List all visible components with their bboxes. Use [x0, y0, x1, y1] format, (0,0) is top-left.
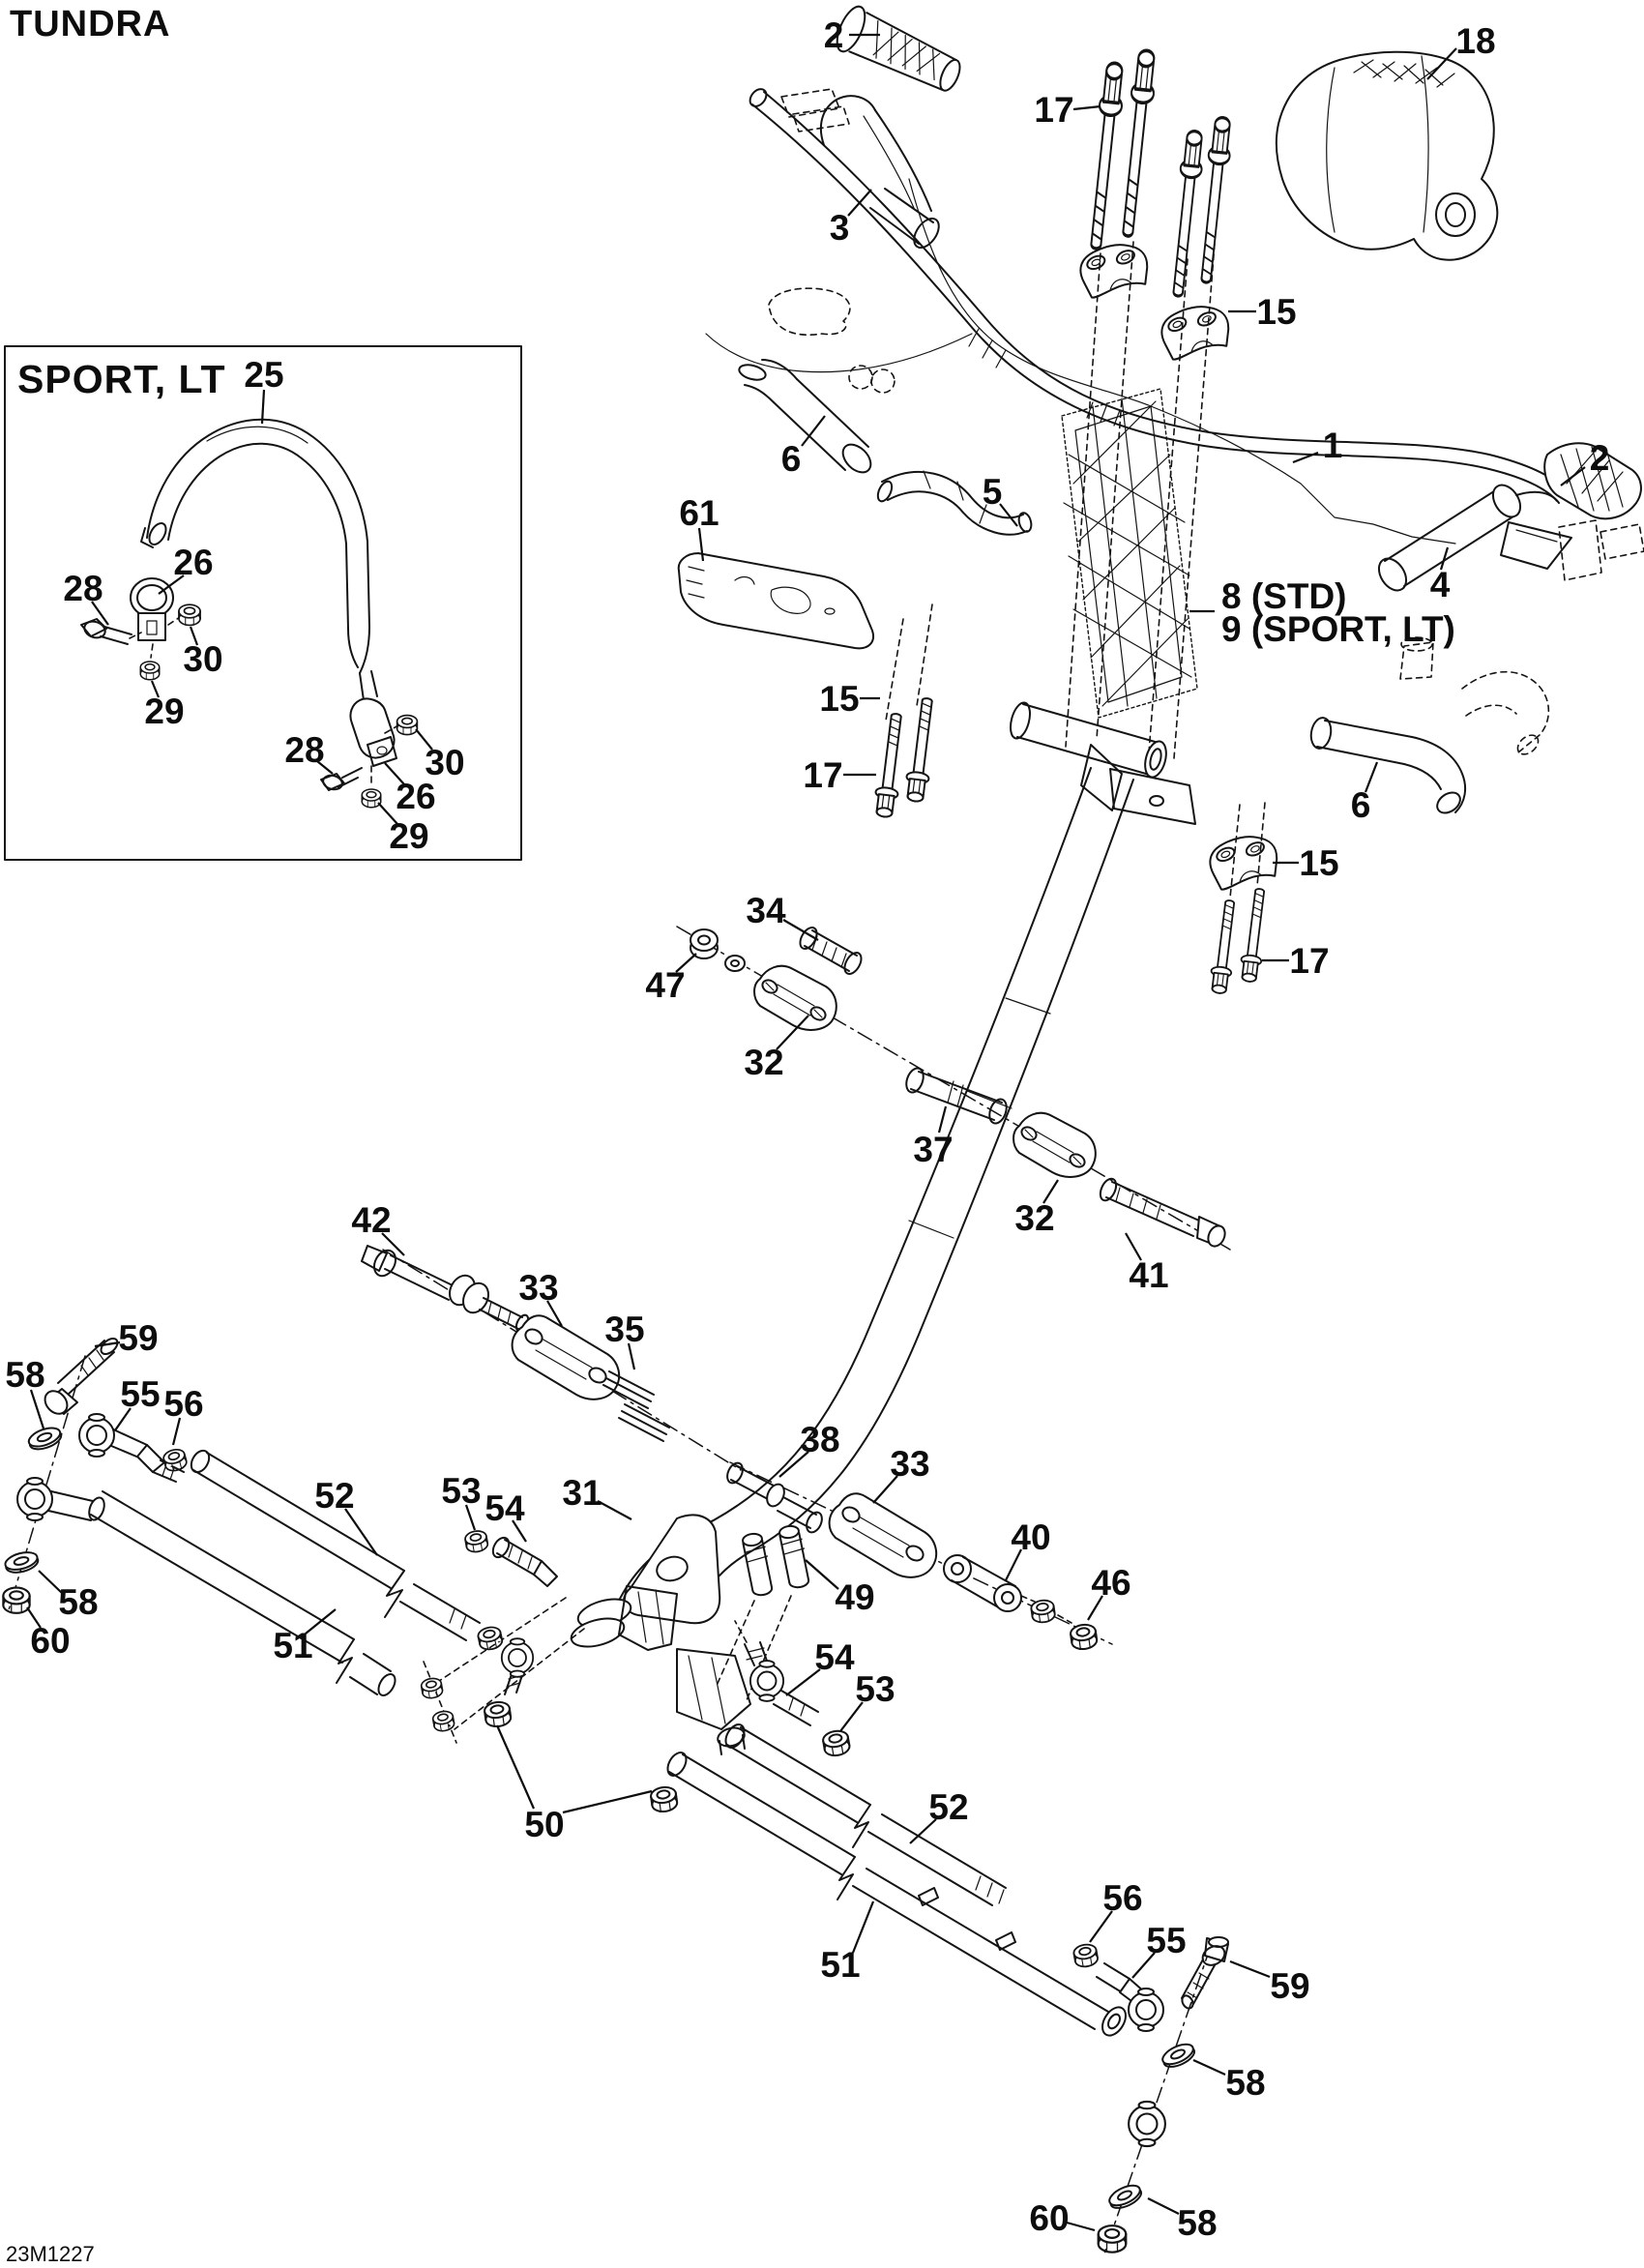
callout-61: 61 [679, 493, 719, 533]
inset-callout-layer: 252628302928302629 [63, 355, 464, 856]
callout-47: 47 [645, 965, 685, 1005]
callout-55: 55 [120, 1374, 160, 1414]
callout-59: 59 [1270, 1966, 1309, 2006]
callout-53: 53 [441, 1471, 481, 1511]
callout-38: 38 [800, 1420, 839, 1459]
right-tie-rods-drawing [664, 1621, 1228, 2253]
leader-line-50 [563, 1791, 652, 1812]
leader-line-60 [1067, 2223, 1095, 2230]
callout-52: 52 [928, 1787, 968, 1827]
upper-linkage-drawing [677, 925, 1230, 1250]
callout-18: 18 [1455, 21, 1495, 61]
callout-28: 28 [284, 730, 324, 770]
elbow-tube-left-drawing [738, 360, 876, 478]
callout-41: 41 [1129, 1255, 1168, 1295]
callout-42: 42 [351, 1200, 391, 1240]
leader-line-37 [939, 1106, 946, 1133]
callout-58: 58 [58, 1582, 98, 1622]
callout-26: 26 [396, 777, 435, 816]
callout-34: 34 [746, 891, 786, 930]
leader-line-58 [1148, 2198, 1179, 2214]
callout-40: 40 [1011, 1517, 1050, 1557]
callout-3: 3 [830, 208, 850, 248]
callout-15: 15 [819, 679, 859, 719]
left-tie-rods-drawing [8, 1336, 524, 1698]
inset-variant-label: SPORT, LT [17, 357, 226, 401]
callout-15: 15 [1256, 292, 1296, 332]
leader-line-31 [598, 1501, 631, 1519]
leader-line-17 [1073, 106, 1101, 109]
callout-30: 30 [183, 639, 222, 679]
hand-guard-drawing [1277, 52, 1497, 260]
callout-58: 58 [5, 1355, 44, 1395]
callout-32: 32 [1014, 1198, 1054, 1238]
callout-56: 56 [1102, 1878, 1142, 1918]
callout-56: 56 [163, 1384, 203, 1424]
left-grip-drawing [832, 3, 968, 99]
callout-33: 33 [890, 1444, 929, 1484]
rod-end-54a-drawing [489, 1535, 557, 1586]
callout-2: 2 [824, 15, 844, 55]
callout-17: 17 [1034, 90, 1073, 130]
leader-line-52 [345, 1509, 377, 1555]
callout-15: 15 [1299, 843, 1338, 883]
callout-59: 59 [118, 1318, 158, 1358]
callout-49: 49 [835, 1577, 874, 1617]
callout-54: 54 [814, 1637, 855, 1677]
callout-6: 6 [781, 439, 802, 479]
callout-50: 50 [524, 1805, 564, 1844]
callout-2: 2 [1590, 438, 1610, 478]
leader-line-58 [1193, 2060, 1225, 2075]
callout-35: 35 [604, 1310, 644, 1349]
callout-1: 1 [1323, 426, 1343, 465]
leader-line-59 [1230, 1961, 1270, 1977]
steering-diagram: TUNDRA SPORT, LT 23M1227 217183151265614… [0, 0, 1644, 2268]
callout-26: 26 [173, 543, 213, 582]
callout-32: 32 [744, 1043, 783, 1082]
callout-55: 55 [1146, 1921, 1186, 1960]
callout-4: 4 [1430, 565, 1451, 604]
steering-column-drawing [424, 700, 1195, 1754]
page-title: TUNDRA [10, 4, 170, 44]
callout-37: 37 [913, 1130, 953, 1169]
callout-28: 28 [63, 569, 103, 608]
leader-line-50 [497, 1725, 534, 1809]
callout-17: 17 [1289, 941, 1329, 981]
callout-60: 60 [30, 1621, 70, 1661]
leader-line-25 [262, 390, 264, 424]
callout-29: 29 [144, 692, 184, 731]
callout-6: 6 [1351, 785, 1371, 825]
callout-58: 58 [1225, 2063, 1265, 2103]
callout-5: 5 [983, 472, 1003, 512]
callout-33: 33 [518, 1268, 558, 1308]
leader-line-58 [31, 1390, 44, 1429]
handlebar-pad-drawing [1062, 389, 1197, 718]
callout-58: 58 [1177, 2203, 1217, 2243]
bracket-61-drawing [679, 553, 873, 648]
document-code: 23M1227 [6, 2242, 95, 2266]
callout-25: 25 [244, 355, 283, 395]
diagram-artwork [3, 3, 1644, 2253]
parts-catalog-page: TUNDRA SPORT, LT 23M1227 217183151265614… [0, 0, 1644, 2268]
callout-31: 31 [562, 1473, 602, 1513]
callout-46: 46 [1091, 1563, 1130, 1603]
clamp-26b-drawing [321, 698, 398, 791]
callout-54: 54 [484, 1488, 525, 1528]
callout-51: 51 [820, 1945, 860, 1985]
hose-drawing [875, 471, 1033, 535]
callout-60: 60 [1029, 2198, 1069, 2238]
leader-line-5 [1000, 504, 1017, 526]
callout-53: 53 [855, 1669, 895, 1709]
callout-layer: 2171831512656148 (STD)9 (SPORT, LT)15176… [5, 15, 1609, 2243]
callout-9 (SPORT, LT): 9 (SPORT, LT) [1221, 609, 1455, 649]
callout-17: 17 [803, 755, 842, 795]
elbow-tube-right-drawing [1308, 637, 1548, 817]
callout-51: 51 [273, 1626, 312, 1665]
leader-line-49 [806, 1560, 838, 1589]
callout-52: 52 [314, 1476, 354, 1516]
callout-29: 29 [389, 816, 428, 856]
